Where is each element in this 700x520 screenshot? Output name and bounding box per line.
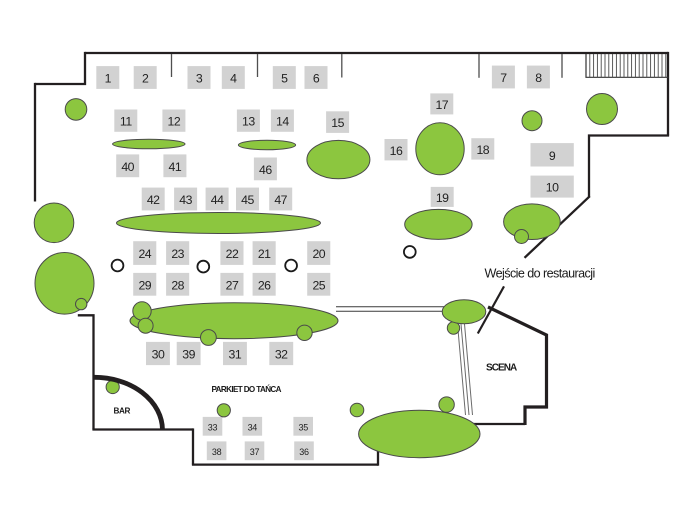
svg-text:20: 20 <box>312 247 325 261</box>
svg-text:14: 14 <box>276 115 289 129</box>
svg-text:27: 27 <box>226 278 239 292</box>
svg-text:26: 26 <box>258 278 271 292</box>
svg-text:24: 24 <box>138 247 151 261</box>
svg-text:33: 33 <box>208 422 218 432</box>
svg-text:Wejście do restauracji: Wejście do restauracji <box>485 267 595 281</box>
svg-text:12: 12 <box>168 115 181 129</box>
svg-text:21: 21 <box>258 247 271 261</box>
svg-text:3: 3 <box>196 72 203 86</box>
svg-text:36: 36 <box>299 447 309 457</box>
svg-text:23: 23 <box>171 247 184 261</box>
svg-text:15: 15 <box>331 116 344 130</box>
svg-text:SCENA: SCENA <box>486 363 517 374</box>
svg-text:5: 5 <box>281 72 288 86</box>
svg-text:16: 16 <box>390 144 403 158</box>
svg-text:42: 42 <box>147 193 160 207</box>
svg-text:9: 9 <box>549 149 556 163</box>
svg-text:18: 18 <box>476 143 489 157</box>
svg-text:39: 39 <box>182 348 195 362</box>
svg-text:28: 28 <box>171 278 184 292</box>
svg-text:7: 7 <box>500 71 507 85</box>
svg-text:11: 11 <box>120 115 132 129</box>
svg-text:19: 19 <box>436 191 449 205</box>
svg-text:45: 45 <box>241 193 254 207</box>
svg-text:1: 1 <box>105 72 112 86</box>
svg-text:17: 17 <box>435 98 448 112</box>
svg-text:37: 37 <box>250 447 260 457</box>
svg-text:32: 32 <box>275 348 288 362</box>
svg-text:31: 31 <box>229 348 242 362</box>
svg-text:38: 38 <box>212 447 222 457</box>
svg-text:2: 2 <box>142 72 149 86</box>
svg-text:25: 25 <box>312 278 325 292</box>
svg-text:13: 13 <box>242 115 255 129</box>
svg-text:43: 43 <box>179 193 192 207</box>
svg-text:29: 29 <box>138 278 151 292</box>
svg-text:22: 22 <box>226 247 239 261</box>
svg-text:46: 46 <box>259 163 272 177</box>
svg-text:40: 40 <box>121 160 134 174</box>
svg-text:PARKIET DO TAŃCA: PARKIET DO TAŃCA <box>212 385 282 394</box>
svg-text:6: 6 <box>313 72 320 86</box>
svg-text:BAR: BAR <box>114 407 131 416</box>
svg-text:8: 8 <box>535 71 542 85</box>
svg-text:34: 34 <box>248 422 258 432</box>
svg-text:4: 4 <box>230 72 237 86</box>
svg-text:47: 47 <box>274 193 287 207</box>
svg-text:44: 44 <box>211 193 224 207</box>
svg-text:41: 41 <box>169 160 182 174</box>
svg-text:35: 35 <box>298 422 308 432</box>
svg-text:10: 10 <box>546 181 559 195</box>
svg-text:30: 30 <box>152 348 165 362</box>
